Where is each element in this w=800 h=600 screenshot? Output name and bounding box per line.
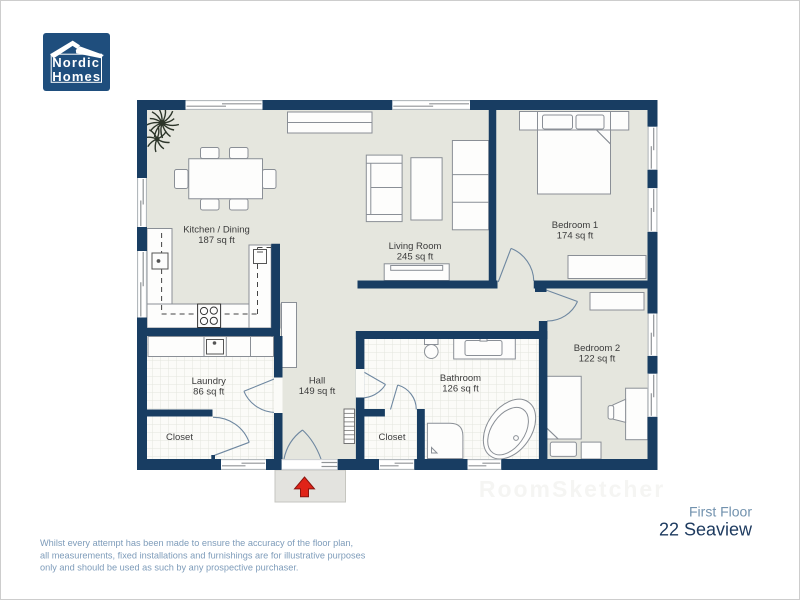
svg-text:only and should be used as suc: only and should be used as such by any p…: [40, 563, 298, 573]
svg-text:Closet: Closet: [379, 432, 406, 443]
svg-text:Kitchen / Dining: Kitchen / Dining: [183, 225, 250, 236]
svg-text:174 sq ft: 174 sq ft: [557, 231, 594, 242]
svg-text:122 sq ft: 122 sq ft: [579, 354, 616, 365]
svg-text:RoomSketcher: RoomSketcher: [479, 476, 665, 502]
svg-text:187 sq ft: 187 sq ft: [198, 235, 235, 246]
svg-text:Laundry: Laundry: [192, 376, 227, 387]
svg-text:Bedroom 2: Bedroom 2: [574, 343, 620, 354]
svg-text:Hall: Hall: [309, 376, 325, 387]
svg-text:First Floor: First Floor: [689, 504, 752, 520]
svg-text:149 sq ft: 149 sq ft: [299, 386, 336, 397]
svg-text:Bathroom: Bathroom: [440, 373, 481, 384]
svg-text:86 sq ft: 86 sq ft: [193, 387, 225, 398]
svg-text:Whilst every attempt has been: Whilst every attempt has been made to en…: [40, 538, 353, 548]
svg-text:245 sq ft: 245 sq ft: [397, 252, 434, 263]
svg-text:Living Room: Living Room: [389, 241, 442, 252]
svg-text:Bedroom 1: Bedroom 1: [552, 220, 598, 231]
svg-text:22 Seaview: 22 Seaview: [659, 520, 753, 540]
svg-text:Homes: Homes: [52, 69, 101, 84]
svg-text:126 sq ft: 126 sq ft: [442, 384, 479, 395]
svg-text:Closet: Closet: [166, 432, 193, 443]
svg-text:Nordic: Nordic: [52, 55, 100, 70]
svg-text:all measurements, fixed instal: all measurements, fixed installations an…: [40, 550, 366, 560]
